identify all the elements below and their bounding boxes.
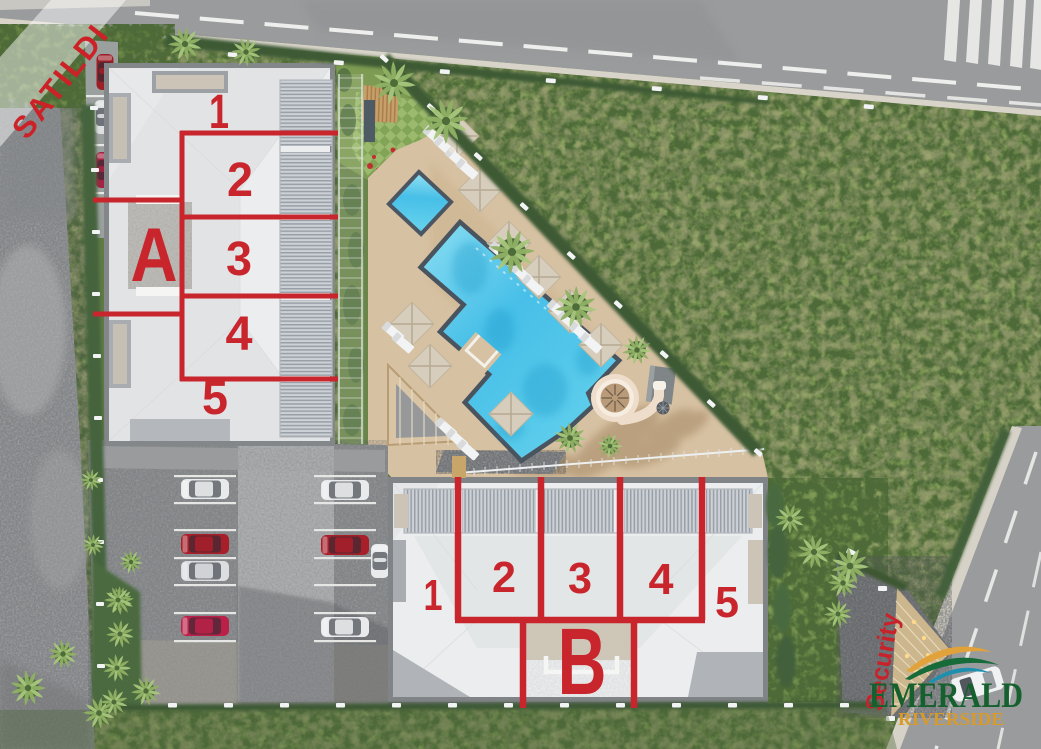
svg-text:2: 2 [492, 553, 516, 602]
svg-text:4: 4 [226, 308, 253, 361]
svg-text:A: A [131, 213, 178, 298]
svg-text:1: 1 [424, 571, 443, 620]
svg-text:1: 1 [209, 86, 229, 139]
svg-text:3: 3 [568, 554, 592, 603]
svg-text:B: B [558, 609, 607, 715]
svg-text:3: 3 [226, 233, 252, 286]
svg-text:5: 5 [715, 578, 739, 627]
svg-text:5: 5 [202, 372, 228, 425]
svg-text:4: 4 [649, 555, 675, 604]
svg-text:RIVERSIDE: RIVERSIDE [898, 709, 1004, 729]
svg-text:2: 2 [227, 154, 253, 207]
